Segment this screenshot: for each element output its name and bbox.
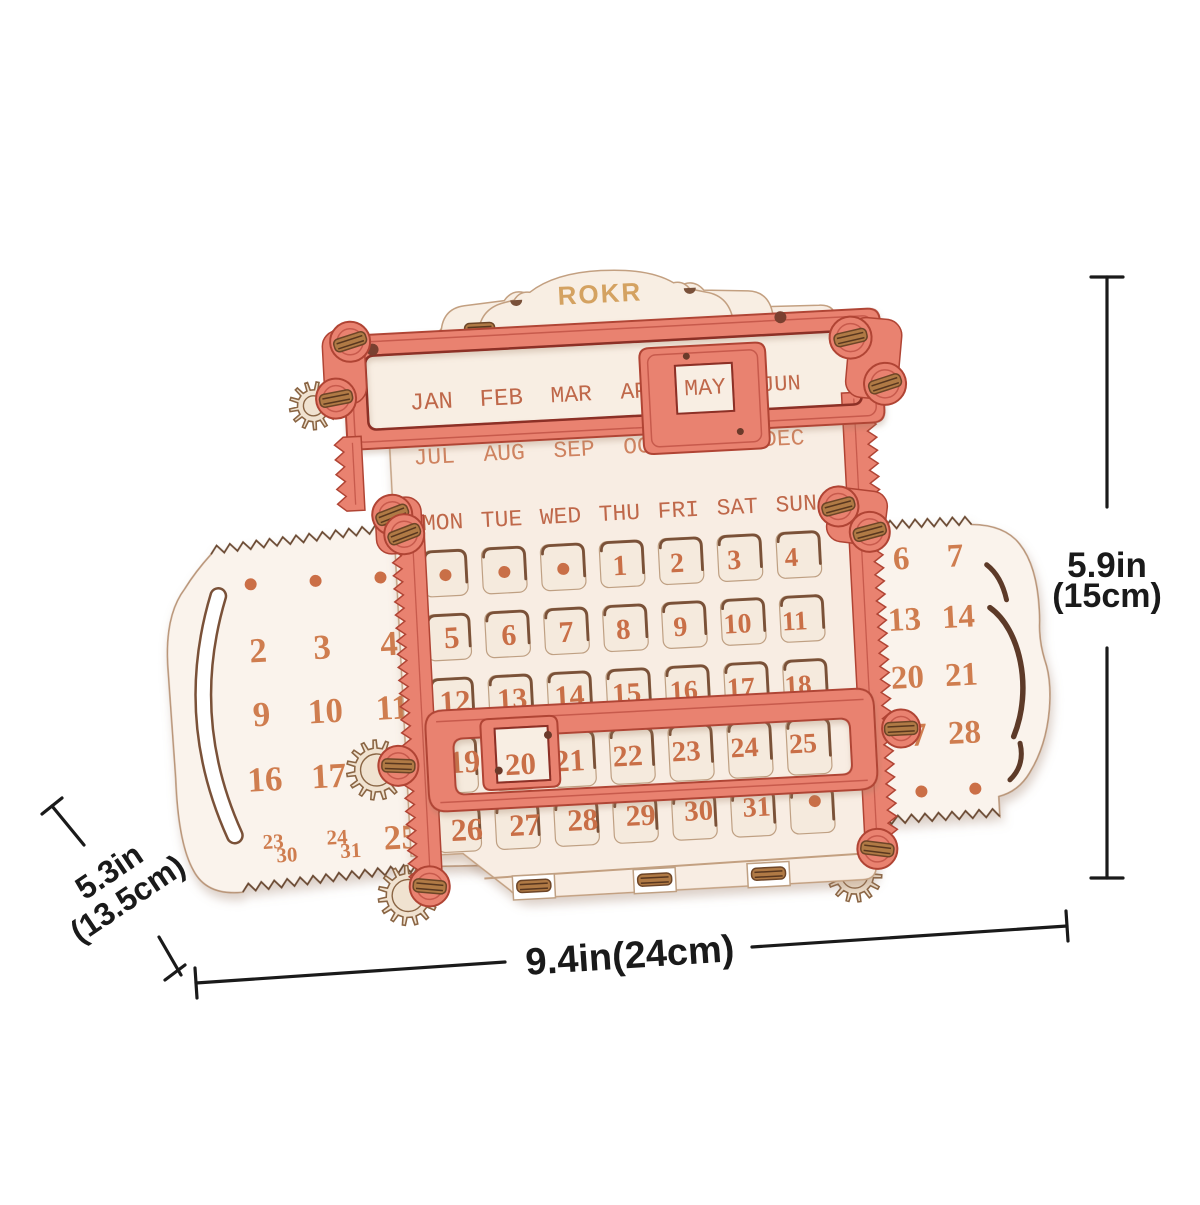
svg-text:JAN: JAN [409,388,454,417]
svg-text:27: 27 [508,807,541,844]
svg-text:17: 17 [310,756,347,797]
svg-text:ROKR: ROKR [557,276,643,310]
svg-text:30: 30 [276,842,298,867]
svg-text:23: 23 [671,735,702,768]
svg-text:MON: MON [421,509,464,537]
svg-text:21: 21 [944,656,979,694]
svg-text:SUN: SUN [775,491,818,519]
svg-text:9: 9 [252,694,272,734]
svg-text:10: 10 [723,608,753,640]
svg-text:WED: WED [539,503,582,531]
svg-text:28: 28 [947,714,982,752]
svg-text:13: 13 [887,601,922,639]
svg-text:SEP: SEP [553,436,596,464]
svg-text:16: 16 [246,759,283,800]
svg-text:24: 24 [730,732,760,764]
svg-text:5: 5 [443,619,460,655]
svg-text:20: 20 [890,659,925,697]
svg-text:2: 2 [669,548,685,580]
svg-text:(15cm): (15cm) [1052,577,1162,615]
svg-text:10: 10 [307,691,344,732]
svg-text:6: 6 [501,618,518,652]
svg-text:14: 14 [941,598,976,636]
svg-text:9: 9 [673,612,689,644]
svg-text:FRI: FRI [657,497,700,525]
svg-text:JUL: JUL [413,443,456,471]
svg-text:TUE: TUE [480,506,523,534]
svg-text:28: 28 [566,801,599,838]
svg-text:7: 7 [946,538,964,575]
svg-text:7: 7 [558,615,575,649]
svg-text:6: 6 [892,541,910,578]
svg-text:22: 22 [612,739,644,774]
svg-text:MAY: MAY [684,374,727,402]
svg-text:1: 1 [612,550,628,583]
svg-text:AUG: AUG [483,440,526,468]
svg-text:MAR: MAR [550,381,593,409]
svg-text:3: 3 [312,627,332,667]
svg-text:25: 25 [788,728,818,760]
svg-text:8: 8 [615,614,631,647]
svg-text:THU: THU [598,500,641,528]
svg-text:4: 4 [379,624,399,664]
svg-text:SAT: SAT [716,494,759,522]
svg-text:20: 20 [504,746,537,783]
svg-text:FEB: FEB [479,385,524,414]
svg-text:3: 3 [726,545,742,577]
svg-text:26: 26 [450,811,484,849]
svg-text:29: 29 [625,798,657,833]
svg-text:2: 2 [248,631,268,671]
svg-text:11: 11 [781,605,808,636]
svg-text:31: 31 [340,838,362,863]
svg-text:4: 4 [784,542,799,573]
